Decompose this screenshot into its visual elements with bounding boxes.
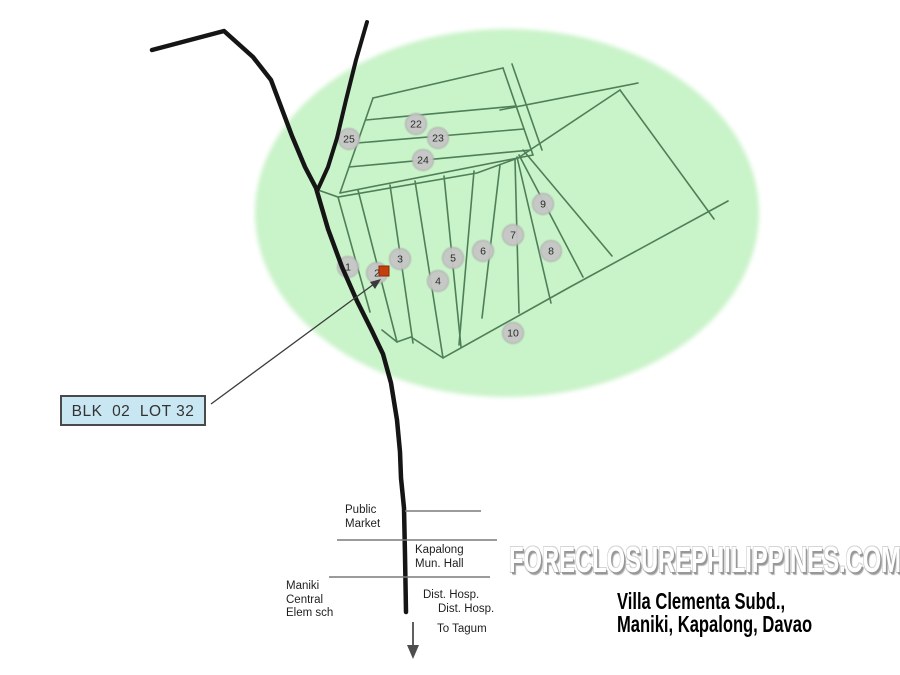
lot-label: BLK 02 LOT 32 (61, 396, 205, 427)
lot-marker-number: 6 (480, 246, 486, 258)
lot-marker-number: 3 (397, 254, 403, 266)
lot-marker-8: 8 (541, 241, 562, 262)
lot-marker-number: 8 (548, 246, 554, 258)
lot-marker-9: 9 (533, 194, 554, 215)
lot-marker-24: 24 (413, 150, 434, 171)
lot-marker-number: 5 (450, 253, 456, 265)
landmark-label-line: Market (345, 518, 380, 532)
landmark-label-line: Mun. Hall (415, 558, 464, 572)
lot-marker-number: 22 (410, 119, 422, 131)
lot-marker-23: 23 (428, 128, 449, 149)
map-title: Villa Clementa Subd., Maniki, Kapalong, … (617, 590, 812, 636)
landmark-label-line: Kapalong (415, 544, 464, 558)
lot-marker-number: 24 (417, 155, 429, 167)
watermark-text: FORECLOSUREPHILIPPINES.COM (509, 541, 900, 579)
landmark-district-hospital-2: Dist. Hosp. (438, 603, 494, 617)
lot-marker-4: 4 (428, 271, 449, 292)
landmark-school: Maniki Central Elem sch (286, 580, 333, 621)
landmark-label-line: Public (345, 504, 380, 518)
lot-marker-number: 25 (343, 134, 355, 146)
subject-lot-marker-square (379, 266, 389, 276)
lot-marker-22: 22 (406, 114, 427, 135)
map-title-line-1: Villa Clementa Subd., (617, 590, 812, 613)
landmark-label-line: Maniki (286, 580, 333, 594)
landmark-public-market: Public Market (345, 504, 380, 531)
lot-marker-7: 7 (503, 225, 524, 246)
landmark-label-line: Central (286, 594, 333, 608)
lot-marker-3: 3 (390, 249, 411, 270)
lot-marker-number: 23 (432, 133, 444, 145)
lot-marker-5: 5 (443, 248, 464, 269)
lot-marker-number: 4 (435, 276, 441, 288)
to-tagum-arrow-head (407, 645, 419, 659)
direction-label-to-tagum: To Tagum (437, 623, 487, 637)
lot-marker-25: 25 (339, 129, 360, 150)
lot-marker-6: 6 (473, 241, 494, 262)
landmark-label-line: Elem sch (286, 607, 333, 621)
lot-marker-number: 9 (540, 199, 546, 211)
vicinity-map-slide: 2522232412345678910 BLK 02 LOT 32 Public… (0, 0, 900, 675)
landmark-district-hospital-1: Dist. Hosp. (423, 589, 479, 603)
lot-marker-10: 10 (503, 323, 524, 344)
landmark-mun-hall: Kapalong Mun. Hall (415, 544, 464, 571)
lot-marker-number: 7 (510, 230, 516, 242)
lot-marker-number: 10 (507, 328, 519, 340)
map-title-line-2: Maniki, Kapalong, Davao (617, 613, 812, 636)
